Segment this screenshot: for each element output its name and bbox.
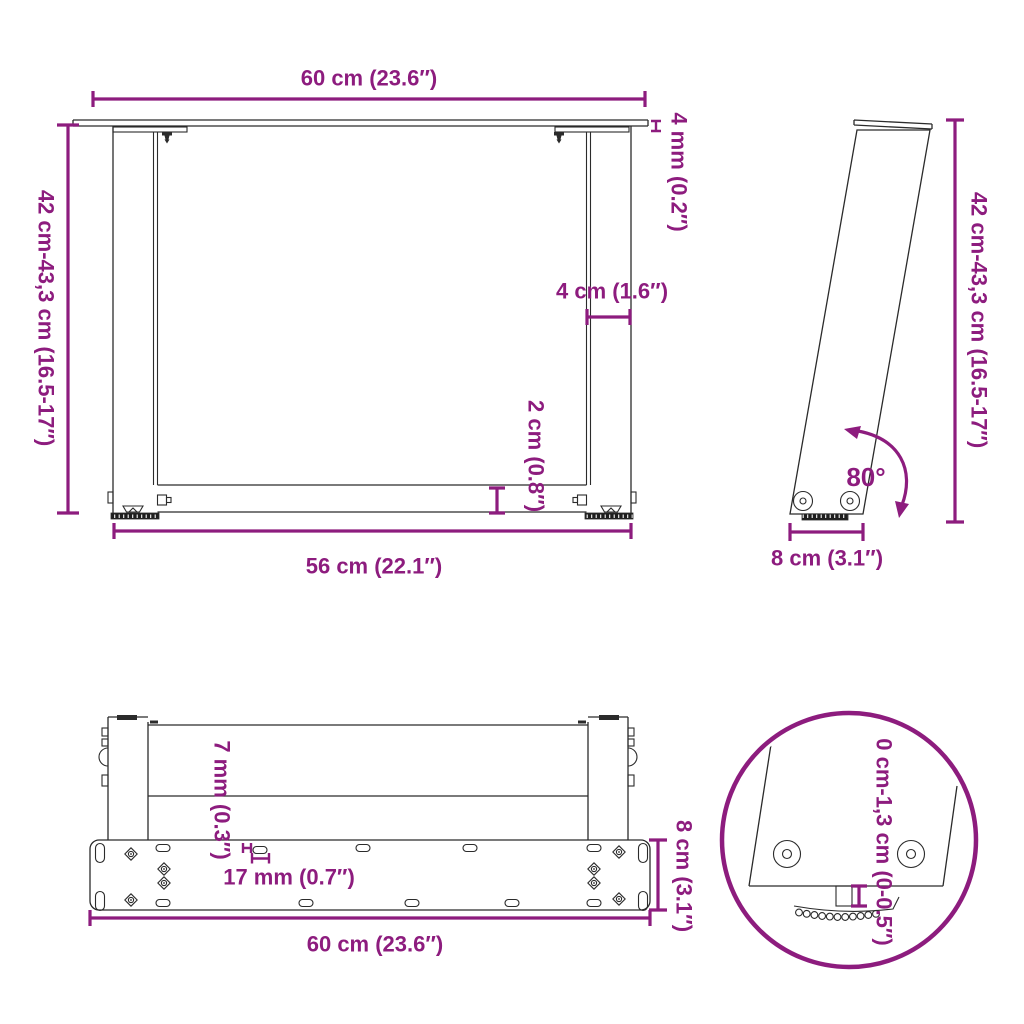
right-leg-bottom: [578, 715, 637, 840]
dim-label-bottom-width: 60 cm (23.6″): [307, 932, 444, 957]
mounting-bracket-left: [113, 127, 187, 144]
dim-label-height-front: 42 cm-43,3 cm (16.5-17″): [34, 190, 59, 446]
dim-label-inner-width: 56 cm (22.1″): [306, 554, 443, 579]
detail-view: 0 cm-1,3 cm (0-0.5″): [722, 713, 976, 967]
dim-hole-offset: 7 mm (0.3″): [210, 740, 252, 859]
tabletop: [73, 120, 648, 126]
adjustable-foot-right: [585, 506, 633, 519]
dim-label-angle: 80°: [846, 462, 885, 492]
crossbar-bolt-left: [158, 495, 172, 505]
left-leg-bottom: [99, 715, 158, 840]
dim-height-front: 42 cm-43,3 cm (16.5-17″): [34, 125, 80, 513]
dim-label-top-thickness: 4 mm (0.2″): [667, 112, 692, 231]
dim-label-top-width: 60 cm (23.6″): [301, 66, 438, 91]
dim-label-height-side: 42 cm-43,3 cm (16.5-17″): [967, 192, 992, 448]
dim-label-slot-length: 17 mm (0.7″): [223, 865, 355, 890]
detail-circle: [722, 713, 976, 967]
mounting-bracket-right: [554, 127, 629, 144]
bottom-view: 7 mm (0.3″) 17 mm (0.7″) 8 cm (3.1″) 60 …: [90, 715, 697, 957]
dim-label-hole-offset: 7 mm (0.3″): [210, 740, 235, 859]
dim-label-leg-width: 4 cm (1.6″): [556, 279, 668, 304]
dim-inner-width: 56 cm (22.1″): [114, 523, 631, 579]
dim-base-depth: 8 cm (3.1″): [771, 523, 883, 571]
dim-label-crossbar-height: 2 cm (0.8″): [524, 400, 549, 512]
screw-hole: [841, 492, 860, 511]
table-leg-dimension-diagram: 60 cm (23.6″) 42 cm-43,3 cm (16.5-17″) 4…: [0, 0, 1024, 1024]
plate-holes: [96, 844, 648, 911]
side-view: 80° 42 cm-43,3 cm (16.5-17″) 8 cm (3.1″): [771, 120, 992, 571]
screw-hole: [794, 492, 813, 511]
mounting-plate: [90, 840, 650, 911]
dim-label-foot-adjustment: 0 cm-1,3 cm (0-0.5″): [872, 738, 897, 945]
dim-label-base-depth: 8 cm (3.1″): [771, 546, 883, 571]
dimension-diagram-page: 60 cm (23.6″) 42 cm-43,3 cm (16.5-17″) 4…: [0, 0, 1024, 1024]
adjustable-foot-left: [111, 506, 159, 519]
screw-icon: [554, 132, 564, 144]
dim-crossbar-height: 2 cm (0.8″): [489, 400, 549, 513]
dim-top-thickness: 4 mm (0.2″): [651, 112, 692, 231]
dim-slot-length: 17 mm (0.7″): [223, 853, 355, 890]
dim-bottom-width: 60 cm (23.6″): [90, 910, 650, 957]
front-view: 60 cm (23.6″) 42 cm-43,3 cm (16.5-17″) 4…: [34, 66, 692, 579]
crossbar: [158, 485, 587, 512]
crossbar-bolt-right: [573, 495, 587, 505]
dim-height-side: 42 cm-43,3 cm (16.5-17″): [946, 120, 992, 522]
tabletop-edge: [854, 120, 932, 129]
dim-plate-depth: 8 cm (3.1″): [649, 820, 697, 932]
left-leg: [108, 126, 158, 513]
dim-top-width: 60 cm (23.6″): [93, 66, 645, 108]
screw-icon: [162, 132, 172, 144]
dim-leg-width: 4 cm (1.6″): [556, 279, 668, 326]
foot-pad: [802, 514, 848, 520]
dim-label-plate-depth: 8 cm (3.1″): [672, 820, 697, 932]
